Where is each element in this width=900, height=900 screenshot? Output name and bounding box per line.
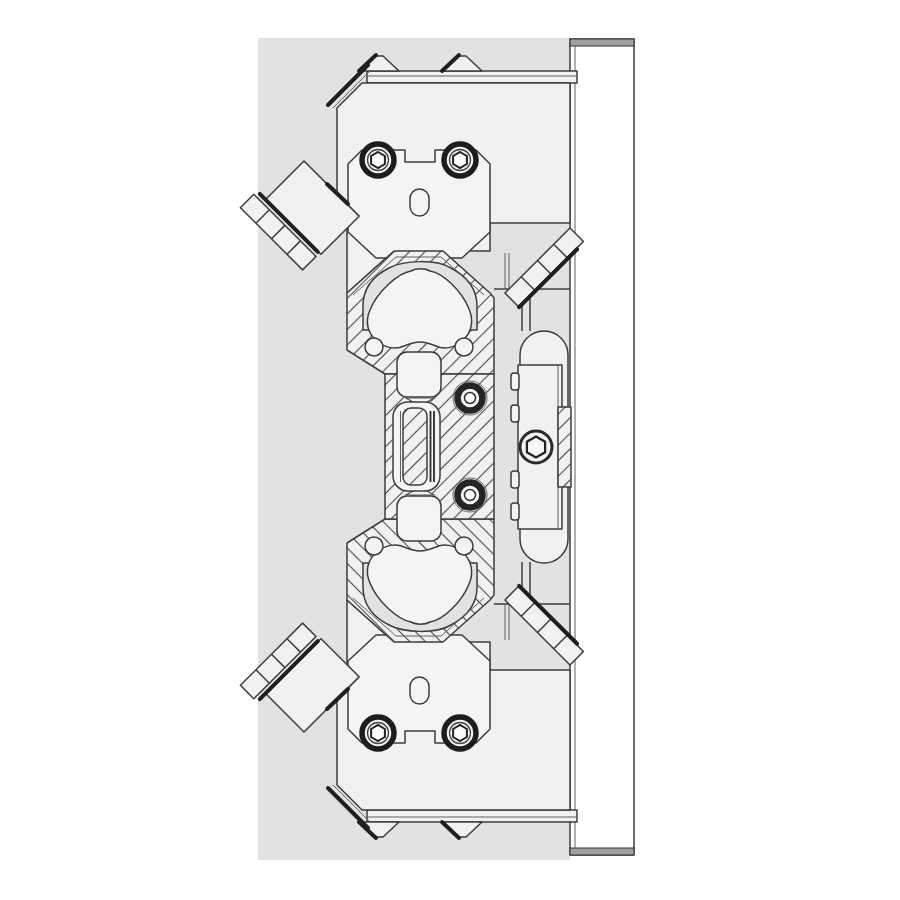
bracket-lug: [511, 405, 519, 422]
slotted-hole: [410, 189, 429, 216]
spring-pocket-bottom: [397, 496, 441, 541]
rail-insert-hatched: [558, 407, 571, 487]
socket-screw: [444, 144, 476, 176]
bracket-lug: [511, 373, 519, 390]
rail-carriage: [511, 331, 571, 563]
top-rail-bar: [367, 71, 577, 83]
carriage-bolt: [520, 431, 552, 463]
central-core: [385, 352, 494, 541]
pin-bore: [365, 338, 383, 356]
guide-roller: [453, 381, 487, 415]
spring-pocket-top: [397, 352, 441, 397]
plate-top-edge: [570, 39, 634, 46]
bracket-lug: [511, 503, 519, 520]
plate-bottom-edge: [570, 848, 634, 855]
cad-drawing-page: Mechanical assembly cross-section CAD dr…: [0, 0, 900, 900]
socket-screw: [362, 144, 394, 176]
guide-roller: [453, 478, 487, 512]
cad-cross-section-drawing: Mechanical assembly cross-section CAD dr…: [0, 0, 900, 900]
piston-rod-hatched: [403, 408, 427, 485]
bracket-lug: [511, 471, 519, 488]
pin-bore: [455, 338, 473, 356]
